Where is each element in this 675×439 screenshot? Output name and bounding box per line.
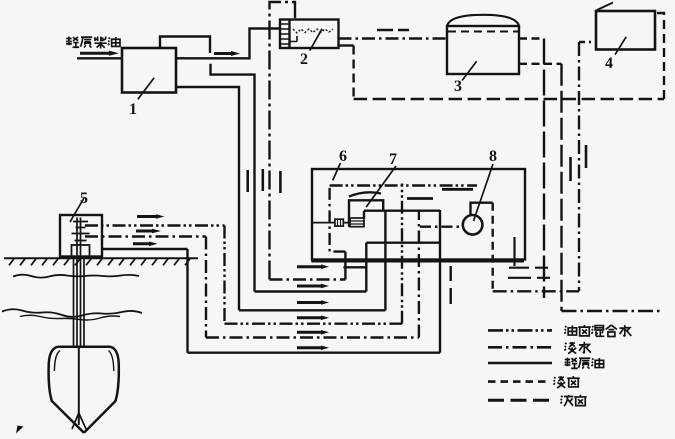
svg-text:1: 1: [129, 101, 137, 118]
svg-text:7: 7: [389, 151, 397, 168]
svg-text:8: 8: [489, 148, 497, 165]
svg-text:4: 4: [605, 55, 613, 72]
svg-text:2: 2: [300, 51, 308, 68]
svg-text:6: 6: [339, 148, 347, 165]
svg-text:5: 5: [80, 190, 88, 207]
svg-text:3: 3: [454, 78, 462, 95]
